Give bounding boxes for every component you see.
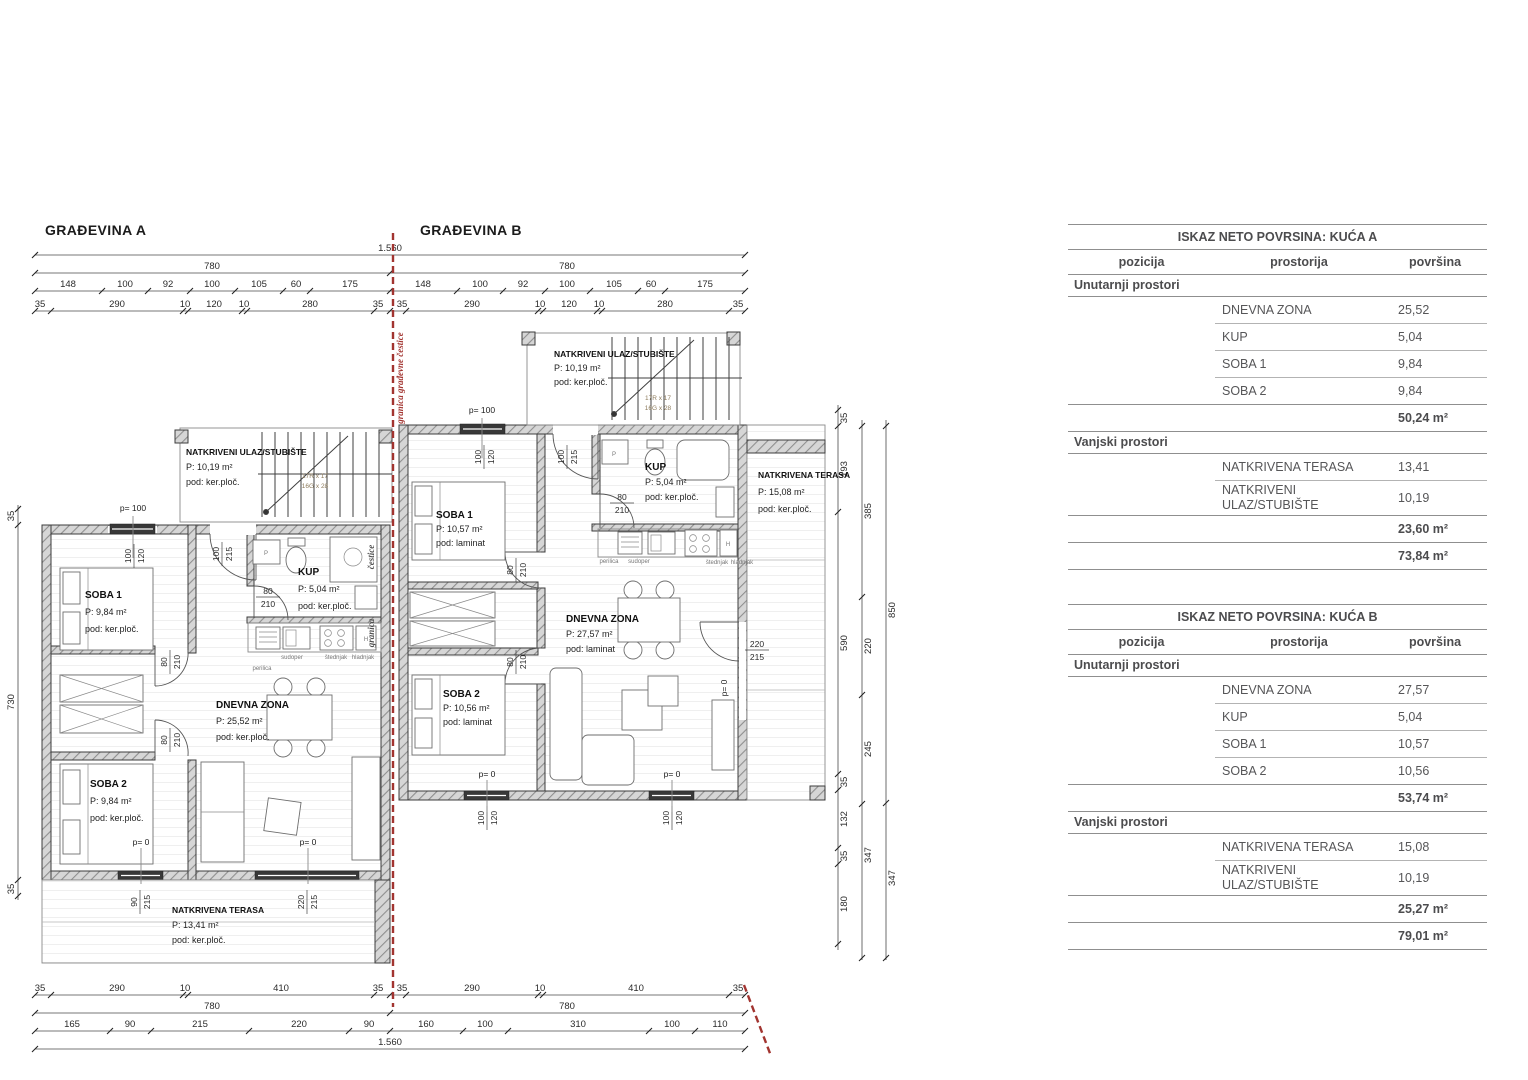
room-label-line: P: 25,52 m²: [216, 716, 263, 726]
room-label-line: SOBA 2: [90, 779, 127, 790]
dim-label: 175: [342, 279, 358, 290]
table-header-row: pozicija prostorija površina: [1068, 630, 1487, 654]
room-label-line: pod: ker.ploč.: [645, 492, 699, 502]
dim-label: 310: [570, 1019, 586, 1030]
section-label: Unutarnji prostori: [1068, 655, 1487, 676]
dim-label: 35: [373, 983, 384, 994]
table-row: NATKRIVENI ULAZ/STUBIŠTE 10,19: [1068, 481, 1487, 515]
subtotal: 23,60 m²: [1068, 516, 1487, 542]
title-building-b: GRAĐEVINA B: [420, 222, 522, 238]
table-row: SOBA 1 10,57: [1068, 731, 1487, 757]
room-label-line: DNEVNA ZONA: [566, 614, 639, 625]
svg-text:P: P: [612, 452, 616, 458]
dim-label: 105: [251, 279, 267, 290]
dim-label: 100: [664, 1019, 680, 1030]
dim-label: 10: [180, 299, 191, 310]
dim-label: 35: [733, 299, 744, 310]
entrance-stairs-a: 17R x 17 16G x 28: [175, 428, 392, 522]
room-label-line: pod: laminat: [443, 717, 493, 727]
dim-label: 10: [239, 299, 250, 310]
dim-label: 780: [204, 1001, 220, 1012]
room-label-line: SOBA 1: [436, 510, 473, 521]
dim-label: 35: [35, 983, 46, 994]
dim-label: 60: [291, 279, 302, 290]
table-title: ISKAZ NETO POVRSINA: KUĆA B: [1068, 605, 1487, 629]
col-header-pozicija: pozicija: [1068, 250, 1215, 274]
dim-chain-top: 1.560 780 780 1481009210010560175 148100…: [32, 243, 748, 314]
dim-label: 730: [6, 694, 17, 710]
terrace-b: [747, 425, 825, 800]
room-label-line: KUP: [298, 567, 319, 578]
room-label-line: P: 5,04 m²: [645, 477, 687, 487]
level-label: p= 0: [479, 769, 496, 779]
dim-label: 215: [192, 1019, 208, 1030]
room-label-line: P: 10,19 m²: [554, 363, 601, 373]
dim-label: 35: [839, 777, 850, 788]
table-total: 73,84 m²: [1068, 543, 1487, 569]
opening-dim-value: 210: [615, 505, 629, 515]
dim-label: 220: [863, 638, 874, 654]
dim-label: 35: [35, 299, 46, 310]
dim-chain-left: 3573035: [6, 505, 21, 900]
table-total: 79,01 m²: [1068, 923, 1487, 949]
dim-label: 280: [657, 299, 673, 310]
cell-prostorija: SOBA 1: [1215, 355, 1380, 374]
cell-prostorija: NATKRIVENI ULAZ/STUBIŠTE: [1215, 861, 1380, 895]
room-label-line: NATKRIVENA TERASA: [758, 470, 850, 480]
table-row: DNEVNA ZONA 25,52: [1068, 297, 1487, 323]
cell-prostorija: NATKRIVENA TERASA: [1215, 458, 1380, 477]
dim-label: 35: [373, 299, 384, 310]
room-label-line: SOBA 2: [443, 689, 480, 700]
dim-label: 92: [518, 279, 529, 290]
room-label-line: SOBA 1: [85, 590, 122, 601]
subtotal: 25,27 m²: [1068, 896, 1487, 922]
dim-label: 100: [477, 1019, 493, 1030]
boundary-label: granica građevne čestice: [395, 332, 405, 424]
cell-povrsina: 9,84: [1383, 357, 1487, 371]
dim-label: 347: [863, 847, 874, 863]
room-label-line: pod: ker.ploč.: [216, 732, 270, 742]
dim-label: 290: [464, 983, 480, 994]
dim-label: 410: [273, 983, 289, 994]
svg-text:štednjak: štednjak: [325, 655, 348, 661]
cell-povrsina: 10,57: [1383, 737, 1487, 751]
opening-dim-value: 100: [211, 547, 221, 561]
table-row: SOBA 2 9,84: [1068, 378, 1487, 404]
svg-text:perilica: perilica: [252, 666, 272, 672]
opening-dim: 100120: [661, 806, 684, 830]
opening-dim-value: 100: [473, 450, 483, 464]
dim-label: 10: [535, 299, 546, 310]
opening-dim-value: 100: [123, 549, 133, 563]
section-label: Unutarnji prostori: [1068, 275, 1487, 296]
dim-label: 10: [535, 983, 546, 994]
opening-dim-value: 215: [224, 547, 234, 561]
col-header-prostorija: prostorija: [1215, 250, 1383, 274]
divider: [1068, 949, 1487, 950]
table-row: KUP 5,04: [1068, 704, 1487, 730]
cell-prostorija: DNEVNA ZONA: [1215, 301, 1380, 320]
opening-dim-value: 90: [129, 897, 139, 907]
col-header-prostorija: prostorija: [1215, 630, 1383, 654]
bed: [412, 675, 505, 755]
cell-povrsina: 10,19: [1383, 871, 1487, 885]
opening-dim-value: 80: [505, 565, 515, 575]
dim-label: 780: [559, 1001, 575, 1012]
boundary-label: granica: [366, 618, 376, 648]
stair-note: 16G x 28: [302, 483, 329, 490]
dim-label: 165: [64, 1019, 80, 1030]
room-label-line: NATKRIVENA TERASA: [172, 905, 264, 915]
level-label: p= 100: [469, 405, 496, 415]
svg-text:perilica: perilica: [599, 559, 619, 565]
subtotal: 53,74 m²: [1068, 785, 1487, 811]
dim-label: 35: [839, 413, 850, 424]
title-building-a: GRAĐEVINA A: [45, 222, 146, 238]
room-label-line: P: 10,19 m²: [186, 462, 233, 472]
svg-text:P: P: [264, 551, 268, 557]
table-header-row: pozicija prostorija površina: [1068, 250, 1487, 274]
area-table-kuca-b: ISKAZ NETO POVRSINA: KUĆA B pozicija pro…: [1068, 604, 1487, 950]
stair-note: 17R x 17: [645, 395, 671, 402]
cell-prostorija: SOBA 1: [1215, 735, 1380, 754]
table-row: DNEVNA ZONA 27,57: [1068, 677, 1487, 703]
cell-povrsina: 10,56: [1383, 764, 1487, 778]
dim-label: 1.560: [378, 1037, 402, 1048]
cell-povrsina: 13,41: [1383, 460, 1487, 474]
table-title: ISKAZ NETO POVRSINA: KUĆA A: [1068, 225, 1487, 249]
room-label-line: pod: ker.ploč.: [758, 504, 812, 514]
dim-label: 105: [606, 279, 622, 290]
room-label-line: P: 9,84 m²: [90, 796, 132, 806]
cell-povrsina: 5,04: [1383, 710, 1487, 724]
level-label: p= 0: [133, 837, 150, 847]
room-label-line: DNEVNA ZONA: [216, 700, 289, 711]
level-label: p= 0: [664, 769, 681, 779]
divider: [1068, 569, 1487, 570]
table-row: NATKRIVENA TERASA 13,41: [1068, 454, 1487, 480]
room-label-line: P: 10,57 m²: [436, 524, 483, 534]
opening-dim-value: 215: [569, 450, 579, 464]
room-label-line: P: 5,04 m²: [298, 584, 340, 594]
table-row: KUP 5,04: [1068, 324, 1487, 350]
room-label-line: pod: ker.ploč.: [186, 477, 240, 487]
dim-label: 850: [887, 602, 898, 618]
cell-prostorija: SOBA 2: [1215, 382, 1380, 401]
col-header-povrsina: površina: [1383, 630, 1487, 654]
cell-povrsina: 27,57: [1383, 683, 1487, 697]
dim-label: 175: [697, 279, 713, 290]
room-label-line: P: 9,84 m²: [85, 607, 127, 617]
room-label-line: pod: ker.ploč.: [172, 935, 226, 945]
dim-label: 780: [559, 261, 575, 272]
level-label: p= 0: [300, 837, 317, 847]
dim-chain-right: 351935903513235180 385220245347 850347: [835, 405, 898, 961]
opening-dim-value: 215: [309, 895, 319, 909]
cell-prostorija: NATKRIVENA TERASA: [1215, 838, 1380, 857]
stair-note: 16G x 28: [645, 405, 672, 412]
col-header-pozicija: pozicija: [1068, 630, 1215, 654]
dim-label: 780: [204, 261, 220, 272]
cell-prostorija: SOBA 2: [1215, 762, 1380, 781]
dim-label: 35: [839, 851, 850, 862]
cell-povrsina: 9,84: [1383, 384, 1487, 398]
room-label-line: pod: ker.ploč.: [554, 377, 608, 387]
opening-dim-value: 220: [750, 639, 764, 649]
svg-text:sudoper: sudoper: [628, 559, 650, 565]
subtotal: 50,24 m²: [1068, 405, 1487, 431]
opening-dim-value: 80: [617, 492, 627, 502]
room-label-line: KUP: [645, 462, 666, 473]
dim-label: 120: [206, 299, 222, 310]
dim-label: 35: [397, 299, 408, 310]
opening-dim-value: 80: [159, 657, 169, 667]
opening-dim-value: 215: [142, 895, 152, 909]
dim-label: 132: [839, 811, 850, 827]
room-label-line: P: 13,41 m²: [172, 920, 219, 930]
opening-dim-value: 120: [674, 811, 684, 825]
dim-label: 280: [302, 299, 318, 310]
dim-label: 92: [163, 279, 174, 290]
opening-dim-value: 80: [263, 586, 273, 596]
dim-label: 90: [364, 1019, 375, 1030]
opening-dim-value: 215: [750, 652, 764, 662]
opening-dim-value: 210: [172, 655, 182, 669]
dim-label: 148: [415, 279, 431, 290]
section-label: Vanjski prostori: [1068, 812, 1487, 833]
opening-dim-value: 80: [159, 735, 169, 745]
table-row: NATKRIVENA TERASA 15,08: [1068, 834, 1487, 860]
dim-label: 100: [472, 279, 488, 290]
room-label-terasa-b: NATKRIVENA TERASAP: 15,08 m²pod: ker.plo…: [758, 470, 850, 514]
room-label-line: P: 27,57 m²: [566, 629, 613, 639]
boundary-label: čestice: [366, 545, 376, 569]
opening-dim-value: 80: [505, 657, 515, 667]
dim-label: 290: [109, 983, 125, 994]
opening-dim-value: 120: [486, 450, 496, 464]
table-row: NATKRIVENI ULAZ/STUBIŠTE 10,19: [1068, 861, 1487, 895]
cell-prostorija: NATKRIVENI ULAZ/STUBIŠTE: [1215, 481, 1380, 515]
kitchen-counter: [598, 529, 737, 557]
room-label-line: NATKRIVENI ULAZ/STUBIŠTE: [186, 446, 307, 457]
floor-plan-drawing: GRAĐEVINA A GRAĐEVINA B 1.560 780 780 14…: [0, 0, 1060, 1080]
opening-dim-value: 120: [489, 811, 499, 825]
dim-chain-bottom: 352901041035 352901041035 780 780 165902…: [32, 983, 748, 1052]
opening-dim-value: 210: [518, 563, 528, 577]
dim-label: 10: [180, 983, 191, 994]
opening-dim-value: 120: [136, 549, 146, 563]
opening-dim-value: 220: [296, 895, 306, 909]
dim-label: 410: [628, 983, 644, 994]
dim-label: 100: [204, 279, 220, 290]
dim-label: 10: [594, 299, 605, 310]
section-label: Vanjski prostori: [1068, 432, 1487, 453]
table-row: SOBA 2 10,56: [1068, 758, 1487, 784]
opening-dim-value: 210: [172, 733, 182, 747]
svg-text:hladnjak: hladnjak: [352, 655, 375, 661]
svg-text:hladnjak: hladnjak: [731, 560, 754, 566]
cell-povrsina: 15,08: [1383, 840, 1487, 854]
dim-label: 35: [6, 511, 17, 522]
floorplan-sheet: { "plan": { "title_a": "GRAĐEVINA A", "t…: [0, 0, 1528, 1080]
dim-label: 110: [712, 1019, 727, 1030]
dim-label: 120: [561, 299, 577, 310]
dim-label: 35: [6, 884, 17, 895]
dim-label: 385: [863, 503, 874, 519]
dim-label: 220: [291, 1019, 307, 1030]
opening-dim-value: 100: [556, 450, 566, 464]
dim-label: 35: [733, 983, 744, 994]
opening-dim: 100120: [476, 806, 499, 830]
dim-label: 290: [464, 299, 480, 310]
opening-dim-value: 100: [476, 811, 486, 825]
cell-povrsina: 25,52: [1383, 303, 1487, 317]
room-label-line: pod: ker.ploč.: [298, 601, 352, 611]
cell-prostorija: KUP: [1215, 328, 1380, 347]
room-label-line: NATKRIVENI ULAZ/STUBIŠTE: [554, 348, 675, 359]
room-label-line: P: 10,56 m²: [443, 703, 490, 713]
svg-text:sudoper: sudoper: [281, 655, 303, 661]
svg-text:H: H: [726, 542, 730, 548]
level-label: p= 0: [719, 679, 729, 696]
opening-dim-value: 100: [661, 811, 671, 825]
room-label-line: pod: ker.ploč.: [85, 624, 139, 634]
dim-label: 35: [397, 983, 408, 994]
cell-prostorija: KUP: [1215, 708, 1380, 727]
room-label-ulaz-a: NATKRIVENI ULAZ/STUBIŠTEP: 10,19 m²pod: …: [186, 446, 307, 487]
dim-label: 245: [863, 741, 874, 757]
area-table-kuca-a: ISKAZ NETO POVRSINA: KUĆA A pozicija pro…: [1068, 224, 1487, 570]
room-label-line: P: 15,08 m²: [758, 487, 805, 497]
opening-dim-value: 210: [261, 599, 275, 609]
dim-label: 100: [117, 279, 133, 290]
cell-prostorija: DNEVNA ZONA: [1215, 681, 1380, 700]
dim-label: 160: [418, 1019, 434, 1030]
dim-label: 60: [646, 279, 657, 290]
cell-povrsina: 5,04: [1383, 330, 1487, 344]
table-row: SOBA 1 9,84: [1068, 351, 1487, 377]
bed: [412, 482, 505, 560]
stair-note: 17R x 17: [302, 473, 328, 480]
opening-dim-value: 210: [518, 655, 528, 669]
room-label-line: pod: laminat: [436, 538, 486, 548]
cell-povrsina: 10,19: [1383, 491, 1487, 505]
room-label-ulaz-b: NATKRIVENI ULAZ/STUBIŠTEP: 10,19 m²pod: …: [554, 348, 675, 387]
svg-text:štednjak: štednjak: [706, 560, 729, 566]
dim-label: 590: [839, 635, 850, 651]
level-label: p= 100: [120, 503, 147, 513]
col-header-povrsina: površina: [1383, 250, 1487, 274]
dim-label: 90: [125, 1019, 136, 1030]
room-label-line: pod: ker.ploč.: [90, 813, 144, 823]
dim-label: 1.560: [378, 243, 402, 254]
room-label-line: pod: laminat: [566, 644, 616, 654]
dim-label: 180: [839, 896, 850, 912]
dim-label: 347: [887, 870, 898, 886]
dim-label: 290: [109, 299, 125, 310]
dim-label: 100: [559, 279, 575, 290]
dim-label: 148: [60, 279, 76, 290]
house-b: [399, 424, 747, 800]
